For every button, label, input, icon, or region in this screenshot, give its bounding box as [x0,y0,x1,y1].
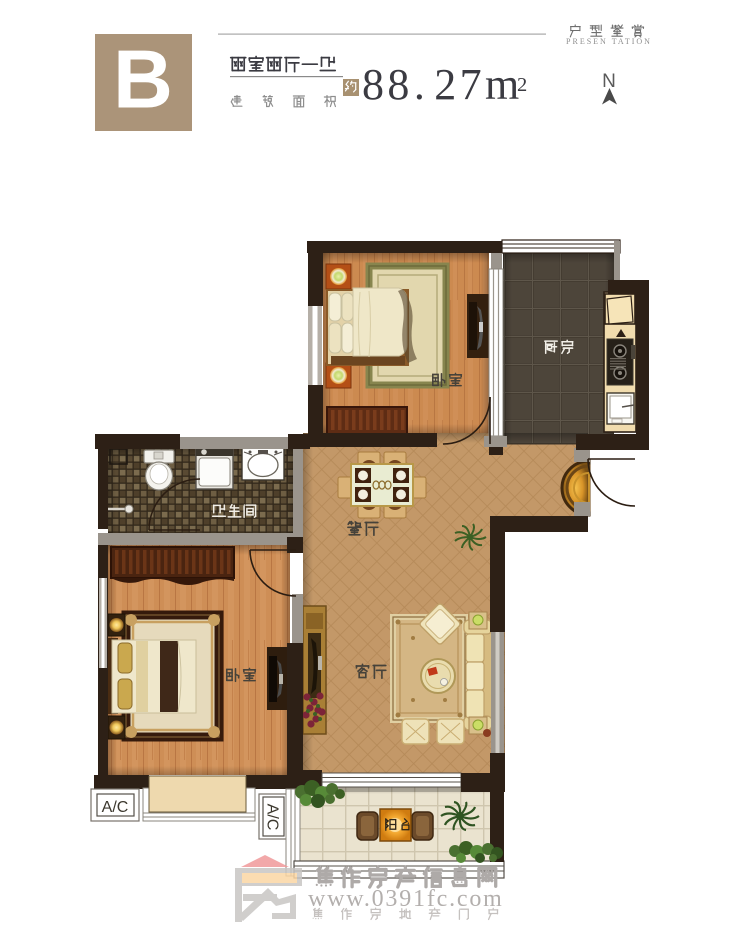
svg-text:N: N [602,71,616,92]
svg-text:A/C: A/C [264,804,281,831]
svg-text:88.27m: 88.27m [362,60,523,109]
svg-text:B: B [113,33,173,126]
svg-text:www.0391fc.com: www.0391fc.com [308,886,504,912]
svg-text:PRESEN TATION: PRESEN TATION [566,37,652,46]
svg-text:2: 2 [517,74,527,96]
svg-text:A/C: A/C [102,799,129,816]
